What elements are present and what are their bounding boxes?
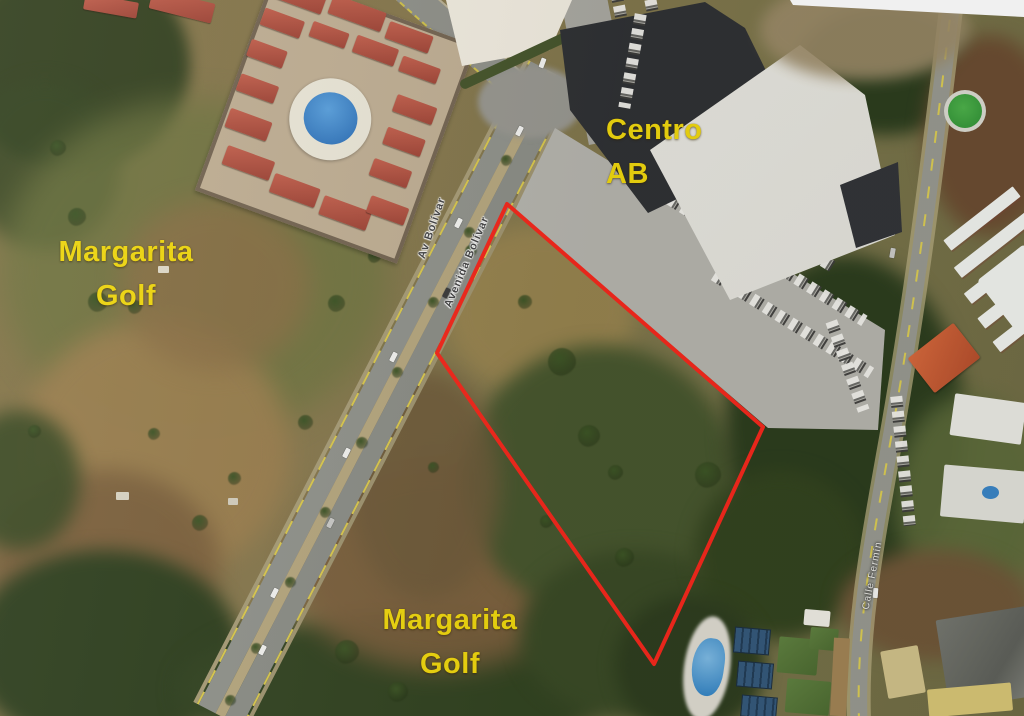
labels-layer: Margarita Golf Centro AB Margarita Golf …	[0, 0, 1024, 716]
road-label-calle-fermin: Calle Fermín	[861, 540, 885, 610]
label-line: Margarita	[40, 230, 212, 274]
place-label-margarita-golf-south: Margarita Golf	[360, 598, 540, 686]
label-line: Golf	[40, 274, 212, 318]
satellite-map: Margarita Golf Centro AB Margarita Golf …	[0, 0, 1024, 716]
label-line: AB	[606, 152, 716, 196]
label-line: Golf	[360, 642, 540, 686]
place-label-margarita-golf-west: Margarita Golf	[40, 230, 212, 318]
road-label-avenida-bolivar: Avenida Bolívar	[442, 215, 491, 310]
label-line: Centro	[606, 108, 716, 152]
place-label-centro-ab: Centro AB	[606, 108, 716, 196]
label-line: Margarita	[360, 598, 540, 642]
road-label-av-bolivar: Av Bolívar	[416, 196, 448, 260]
